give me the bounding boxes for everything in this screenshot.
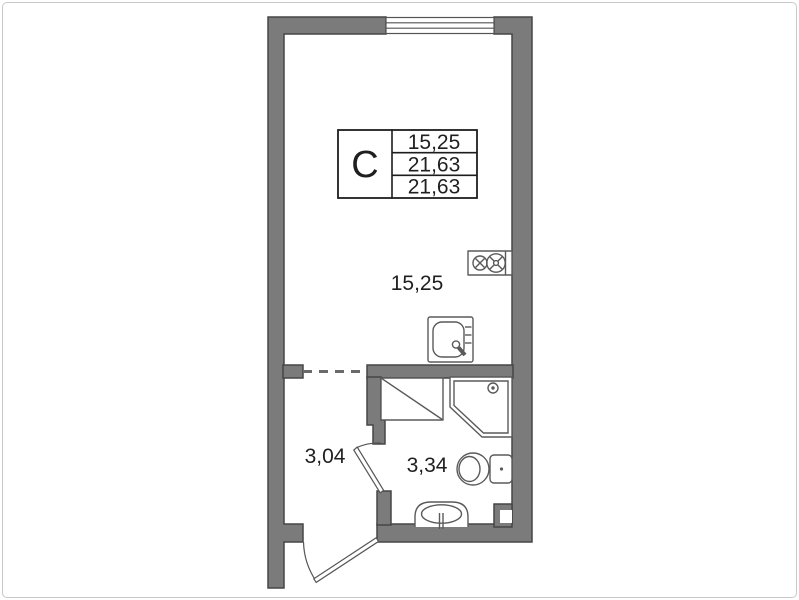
vent-shaft-icon bbox=[381, 378, 443, 420]
stove-burner-large-center bbox=[494, 261, 499, 266]
wall-left-top bbox=[268, 17, 386, 588]
entrance-door-leaf bbox=[314, 538, 379, 583]
living-room-area-label: 15,25 bbox=[391, 272, 444, 295]
shower-outer bbox=[450, 377, 512, 437]
bathroom-door-icon bbox=[354, 443, 384, 493]
stamp-total-area-with-balcony: 21,63 bbox=[408, 176, 461, 199]
bathroom-door-leaf bbox=[354, 447, 384, 493]
floor-plan-image: С 15,25 21,63 21,63 bbox=[0, 0, 799, 600]
shower-tray-icon bbox=[450, 377, 512, 437]
window-frame bbox=[386, 18, 494, 34]
floor-plan-drawing: С 15,25 21,63 21,63 bbox=[0, 0, 799, 600]
apartment-type-letter: С bbox=[351, 144, 378, 186]
toilet-tank-button bbox=[500, 467, 503, 470]
area-stamp: С 15,25 21,63 21,63 bbox=[338, 130, 477, 199]
walls bbox=[268, 17, 532, 588]
corner-duct-opening bbox=[500, 510, 512, 523]
stamp-living-area: 15,25 bbox=[408, 131, 461, 154]
bathroom-area-label: 3,34 bbox=[407, 454, 448, 477]
entrance-door-swing-arc bbox=[304, 542, 317, 581]
wall-bathroom-north bbox=[367, 365, 513, 378]
hallway-area-label: 3,04 bbox=[305, 445, 346, 468]
kitchen-sink-icon bbox=[428, 317, 473, 362]
stove-icon bbox=[468, 251, 512, 275]
sink-faucet bbox=[452, 341, 459, 348]
shower-drain-dot bbox=[491, 386, 494, 389]
sink-counter bbox=[428, 317, 473, 362]
window-icon bbox=[386, 18, 494, 34]
wall-hall-stub bbox=[283, 365, 303, 378]
wall-bathroom-door-jamb bbox=[377, 491, 391, 525]
washbasin-icon bbox=[415, 502, 468, 529]
entrance-door-icon bbox=[304, 538, 379, 583]
stamp-total-area: 21,63 bbox=[408, 154, 461, 177]
toilet-icon bbox=[457, 453, 512, 485]
